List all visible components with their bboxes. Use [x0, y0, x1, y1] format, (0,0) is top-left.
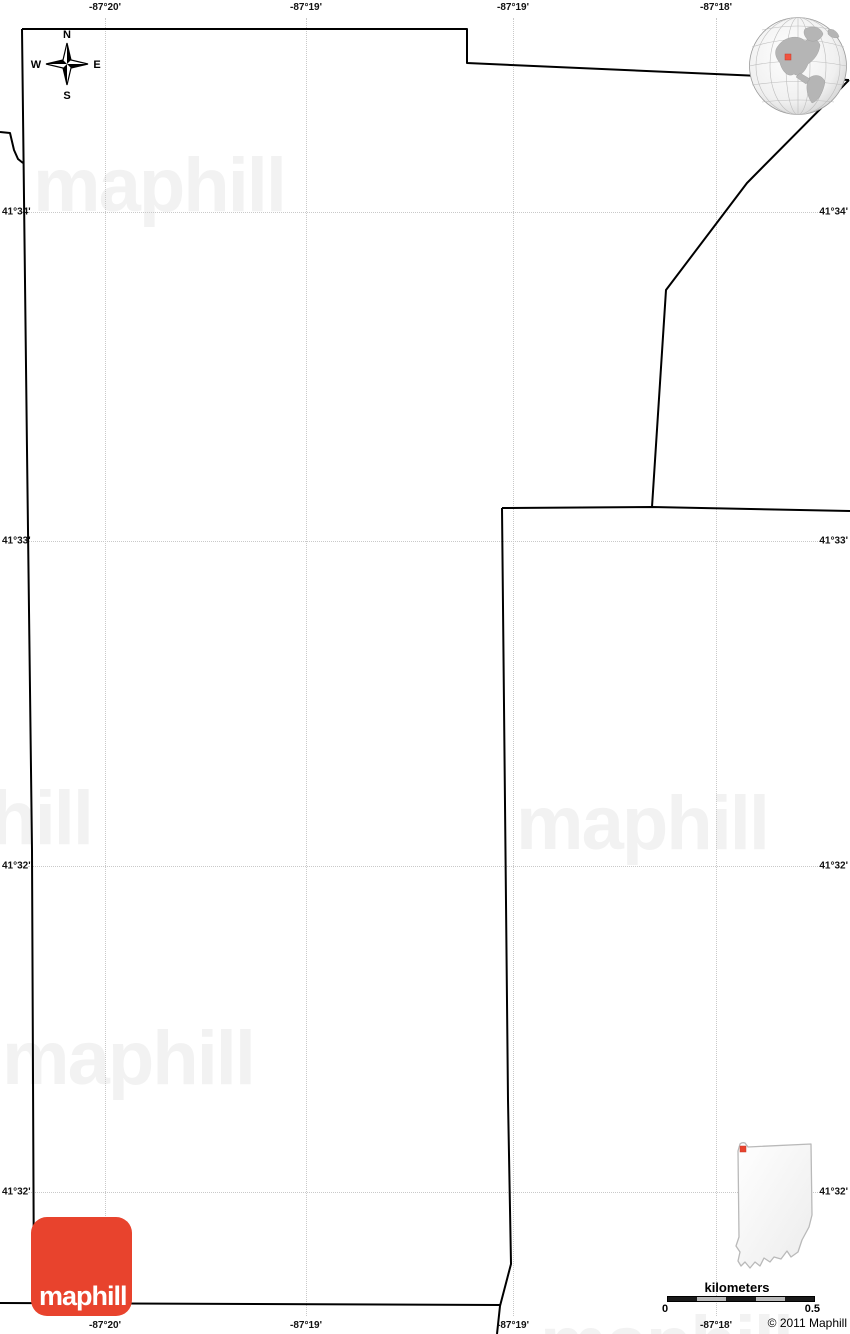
- indiana-outline: [736, 1143, 812, 1268]
- longitude-label: -87°20': [89, 1320, 121, 1331]
- latitude-label: 41°33': [819, 536, 848, 547]
- boundary-lines: [0, 0, 850, 1334]
- maphill-logo[interactable]: maphill: [31, 1217, 132, 1316]
- latitude-label: 41°32': [2, 1187, 31, 1198]
- northeast-diagonal: [652, 80, 849, 507]
- latitude-label: 41°34': [819, 207, 848, 218]
- compass-south-label: S: [63, 90, 70, 102]
- scale-bar-max-label: 0.5: [805, 1303, 820, 1315]
- longitude-label: -87°19': [497, 1320, 529, 1331]
- scale-bar-segment: [756, 1297, 785, 1301]
- copyright-text: © 2011 Maphill: [768, 1316, 847, 1330]
- compass-rose: N S W E: [27, 24, 107, 104]
- parcel-top-border: [502, 507, 850, 511]
- longitude-label: -87°19': [290, 2, 322, 13]
- scale-bar-segment: [785, 1297, 814, 1301]
- longitude-label: -87°18': [700, 2, 732, 13]
- scale-bar: kilometers 0 0.5: [660, 1280, 822, 1316]
- compass-north-label: N: [63, 29, 71, 41]
- scale-bar-segment: [697, 1297, 726, 1301]
- latitude-label: 41°33': [2, 536, 31, 547]
- indiana-inset: [728, 1136, 823, 1276]
- globe-locator: [748, 16, 848, 116]
- latitude-label: 41°32': [819, 861, 848, 872]
- latitude-label: 41°32': [819, 1187, 848, 1198]
- scale-bar-units-label: kilometers: [660, 1280, 814, 1295]
- scale-bar-min-label: 0: [662, 1303, 668, 1315]
- latitude-label: 41°34': [2, 207, 31, 218]
- inset-location-marker: [740, 1146, 746, 1152]
- globe-location-marker: [785, 54, 791, 60]
- map-page: maphillmaphillmaphillmaphillmaphill -87°…: [0, 0, 850, 1334]
- latitude-label: 41°32': [2, 861, 31, 872]
- compass-star-icon: [46, 43, 88, 85]
- west-border: [22, 29, 34, 1303]
- west-notch: [0, 132, 23, 163]
- scale-bar-segments: [667, 1296, 815, 1302]
- north-border: [22, 29, 849, 80]
- parcel-west-border: [497, 508, 511, 1334]
- compass-east-label: E: [93, 59, 100, 71]
- scale-bar-segment: [668, 1297, 697, 1301]
- longitude-label: -87°19': [497, 2, 529, 13]
- compass-west-label: W: [31, 59, 42, 71]
- scale-bar-segment: [726, 1297, 755, 1301]
- longitude-label: -87°19': [290, 1320, 322, 1331]
- longitude-label: -87°20': [89, 2, 121, 13]
- maphill-logo-label: maphill: [39, 1283, 127, 1310]
- longitude-label: -87°18': [700, 1320, 732, 1331]
